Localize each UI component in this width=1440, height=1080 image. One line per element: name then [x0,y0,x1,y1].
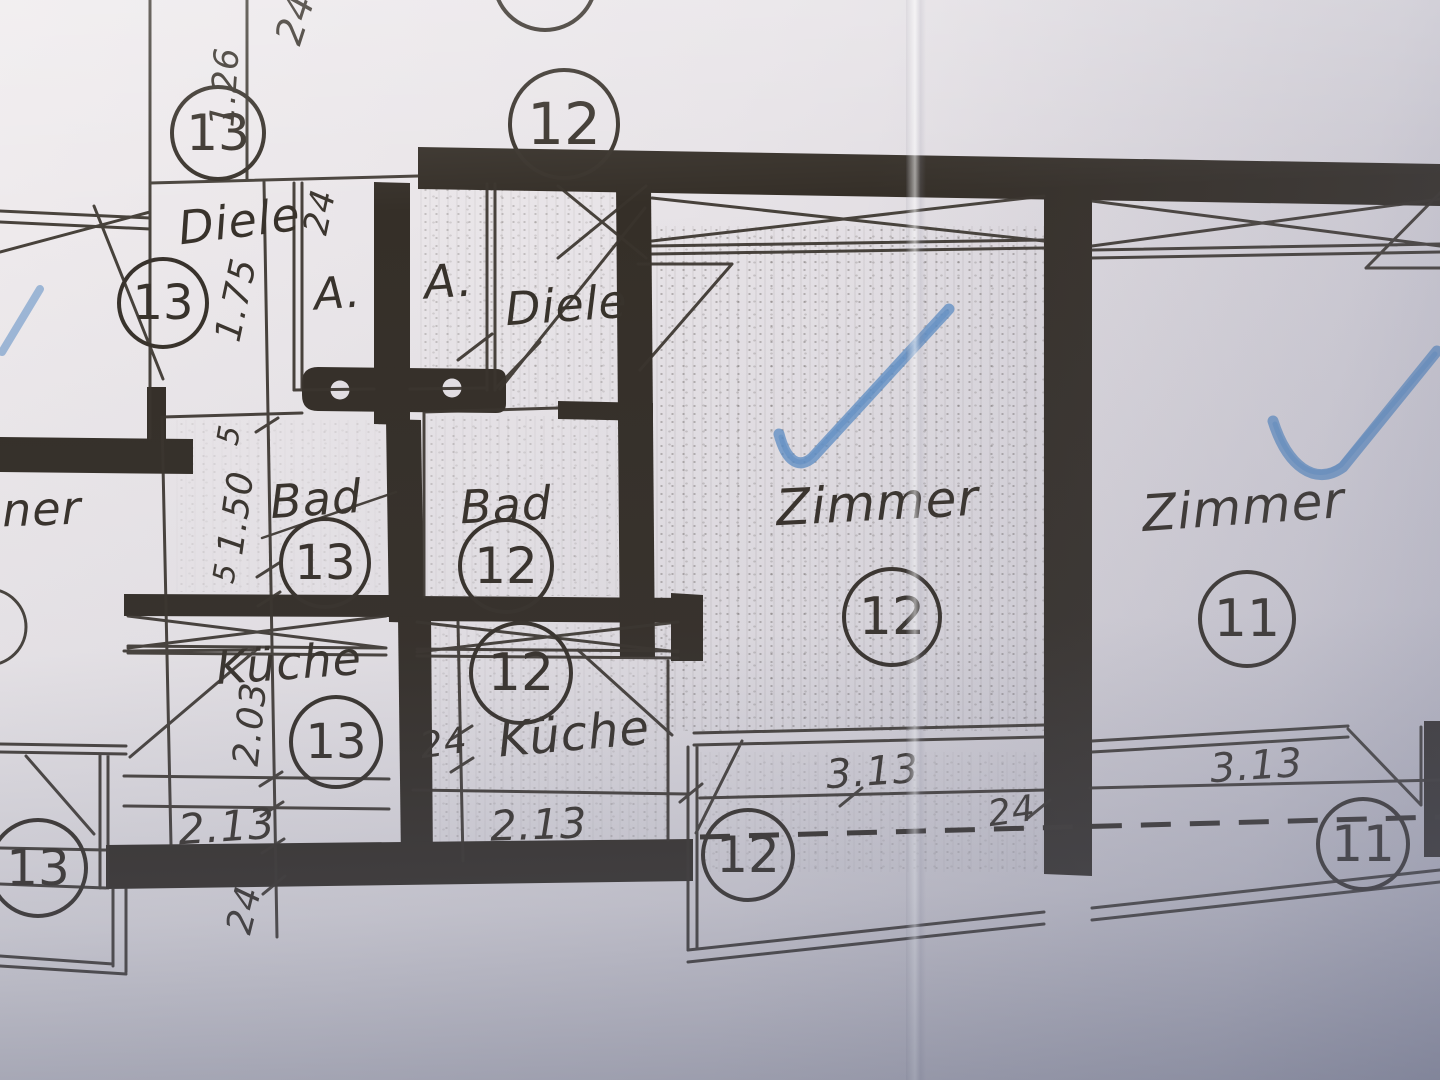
partial-circle-left-edge [0,589,26,665]
window-zimmer-11 [1092,199,1440,258]
circle-number-text: 13 [305,718,366,766]
circle-number-text: 11 [1214,593,1280,645]
checkmark-icon [1273,351,1437,475]
circle-number-bad-left: 13 [279,517,371,609]
circle-number-text: 13 [294,539,355,587]
room-label-a-left: A. [313,270,363,317]
room-label-diele-right: Diele [504,278,630,332]
line [487,184,495,390]
line [162,417,171,845]
room-label-zimmer-right: Zimmer [1141,475,1347,539]
circle-number-top-left: 13 [170,85,266,181]
dim-mid-24: 24 [418,723,470,765]
line [150,176,418,183]
circle-number-top-center: 12 [508,68,620,180]
wall-mid-middle [386,419,424,623]
room-label-a-right: A. [422,256,474,305]
circle-number-diele-left: 13 [117,257,209,349]
circle-number-text: 13 [6,843,70,893]
floorplan-photo: Diele A. A. Diele Bad Bad Küche Küche Zi… [0,0,1440,1080]
dim-2-13-right: 2.13 [489,802,588,847]
dim-3-13-left: 3.13 [825,749,921,795]
circle-number-text: 12 [527,95,601,153]
circle-number-zimmer-right: 11 [1198,570,1296,668]
circle-number-kueche-left: 13 [289,695,383,789]
wall-diele-zimmer [616,184,655,657]
checkmark-partial-icon [2,289,40,352]
circle-number-text: 12 [716,830,780,880]
dim-3-13-right: 3.13 [1209,743,1305,789]
dim-2-13-left: 2.13 [177,803,277,852]
checkmark-icon [779,309,949,463]
circle-number-text: 13 [132,279,193,327]
room-label-diele-left: Diele [176,191,303,252]
circle-number-text: 11 [1331,819,1395,869]
circle-number-text: 12 [488,647,554,699]
circle-number-text: 17 [512,0,578,5]
dim-balcony-24: 24 [986,791,1038,833]
circle-number-text: 13 [186,108,250,158]
circle-number-zimmer-mid: 12 [842,567,942,667]
dim-line-kueche-right [413,790,688,794]
circle-number-balcony-mid: 12 [701,808,795,902]
circle-number-kueche-right: 12 [469,621,573,725]
circle-number-text: 12 [859,591,925,643]
circle-number-balcony-right: 11 [1316,797,1410,891]
room-label-zimmer-mid: Zimmer [775,473,980,534]
circle-number-text: 12 [474,541,538,591]
wall-party-vertical [1044,167,1092,876]
room-label-zimmer-cut: ner [1,485,82,534]
window-partial-left [0,211,150,252]
balcony-mid-bottom [688,912,1044,962]
wall-right-edge-stub [1424,721,1440,857]
circle-number-bad-right: 12 [458,518,554,614]
window-zimmer-12 [652,196,1044,254]
